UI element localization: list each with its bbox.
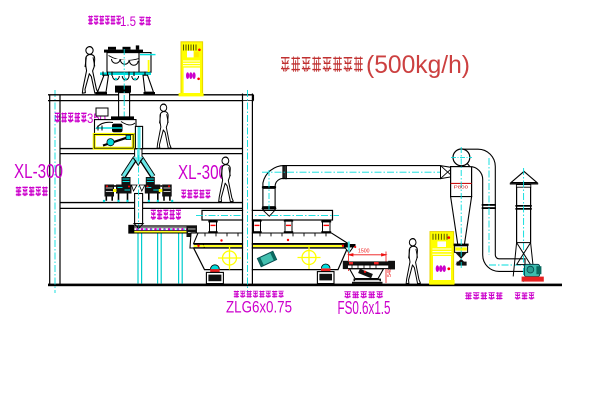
svg-text:FS0.6x1.5: FS0.6x1.5	[338, 298, 391, 318]
svg-text:ZLG6x0.75: ZLG6x0.75	[226, 298, 292, 317]
svg-text:XL-300: XL-300	[178, 162, 227, 184]
svg-text:XL-300: XL-300	[14, 161, 63, 183]
svg-text:1.5: 1.5	[120, 13, 136, 29]
svg-text:1500: 1500	[358, 248, 370, 254]
svg-text:(500kg/h): (500kg/h)	[366, 51, 470, 79]
